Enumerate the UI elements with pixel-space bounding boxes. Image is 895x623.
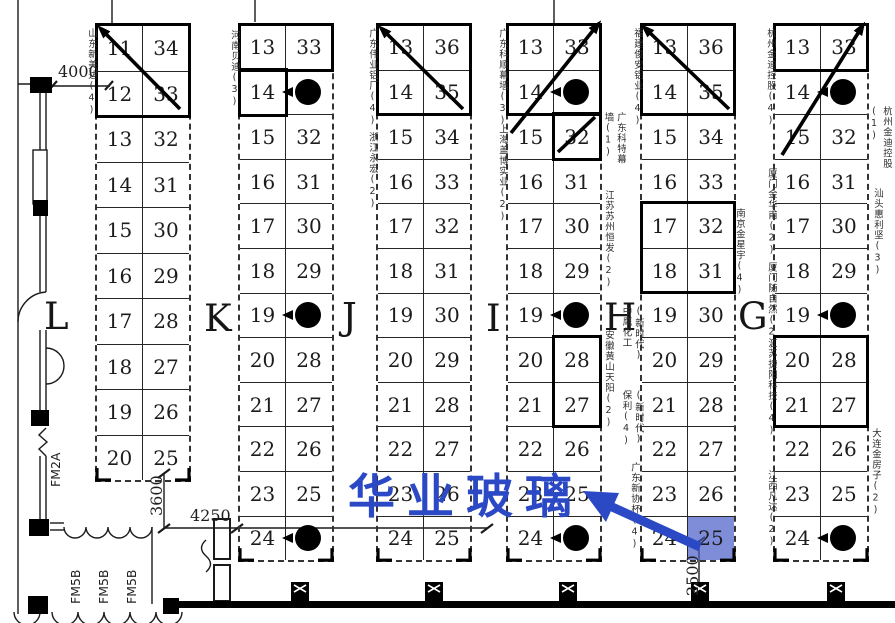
booth-cell: 18 [642, 249, 688, 293]
hall-letter-K: K [204, 297, 232, 340]
booth-cell: 13 [642, 25, 688, 70]
booth-row: 1435 [378, 70, 470, 115]
booth-cell: 33 [286, 25, 332, 70]
booth-row: 2326 [642, 471, 734, 516]
booth-cell: 21 [642, 383, 688, 427]
booth-cell: 26 [286, 427, 332, 471]
exhibitor-label: 广东科特幕墙(1) [600, 112, 626, 174]
booth-row: 1435 [642, 70, 734, 115]
booth-cell: 26 [143, 390, 189, 435]
booth-cell: 28 [424, 383, 470, 427]
booth-cell: 16 [378, 160, 424, 204]
booth-cell: 29 [688, 338, 734, 382]
booth-cell: 33 [821, 25, 867, 70]
booth-cell: 14 [508, 71, 554, 115]
booth-row: 1333 [508, 25, 600, 70]
exhibitor-label: 大连金房子(2) [867, 428, 881, 528]
booth-cell: 27 [821, 383, 867, 427]
exhibitor-label: 广东新协杯(4) [626, 462, 640, 554]
booth-cell: 27 [143, 345, 189, 390]
booth-cell: 28 [143, 299, 189, 344]
booth-row: 1827 [97, 344, 189, 390]
booth-row: 2128 [642, 382, 734, 427]
booth-row: 2325 [775, 471, 867, 516]
booth-cell: 13 [97, 117, 143, 162]
occupied-marker [830, 525, 856, 551]
booth-cell: 28 [286, 338, 332, 382]
booth-cell: 14 [642, 71, 688, 115]
booth-row: 1333 [240, 25, 332, 70]
booth-cell: 23 [642, 472, 688, 516]
booth-cell: 15 [508, 115, 554, 159]
booth-row: 2325 [240, 471, 332, 516]
booth-cell: 22 [240, 427, 286, 471]
booth-row: 1732 [642, 203, 734, 248]
booth-cell: 34 [143, 25, 189, 71]
booth-row: 1831 [642, 248, 734, 293]
exhibitor-label: 江苏捷阳科技(4) [763, 338, 777, 440]
booth-row: 1930 [378, 293, 470, 338]
booth-row: 24 [240, 516, 332, 561]
booth-cell: 36 [688, 25, 734, 70]
exhibitor-label: 江西凡达(2) [763, 470, 777, 555]
booth-cell: 19 [508, 294, 554, 338]
booth-row: 1631 [775, 159, 867, 204]
occupied-marker [830, 302, 856, 328]
booth-row: 14 [240, 70, 332, 115]
booth-cell: 15 [97, 208, 143, 253]
booth-row: 2028 [508, 337, 600, 382]
booth-cell: 32 [286, 115, 332, 159]
booth-cell: 19 [240, 294, 286, 338]
booth-row: 1633 [642, 159, 734, 204]
occupied-marker [563, 525, 589, 551]
booth-row: 1631 [508, 159, 600, 204]
booth-cell: 30 [821, 204, 867, 248]
door-label: FM5B [96, 569, 111, 604]
booth-row: 1332 [97, 116, 189, 162]
booth-cell: 32 [688, 204, 734, 248]
booth-cell: 30 [424, 294, 470, 338]
booth-cell: 16 [642, 160, 688, 204]
booth-cell: 32 [554, 115, 600, 159]
exhibitor-label: (新时代)中鹰化工(1) [618, 306, 644, 370]
dimension-text: 4250 [190, 506, 231, 525]
booth-row: 1930 [642, 293, 734, 338]
booth-row: 1333 [775, 25, 867, 70]
booth-cell: 25 [143, 436, 189, 481]
booth-cell: 17 [378, 204, 424, 248]
exhibitor-label: 南京金星宇(4) [731, 208, 745, 300]
booth-cell: 17 [508, 204, 554, 248]
booth-cell [286, 294, 332, 338]
booth-cell: 31 [143, 163, 189, 208]
booth-cell: 36 [424, 25, 470, 70]
occupied-marker [295, 79, 321, 105]
booth-cell [554, 71, 600, 115]
booth-cell: 18 [378, 249, 424, 293]
booth-row: 2127 [240, 382, 332, 427]
booth-cell: 30 [286, 204, 332, 248]
booth-cell [286, 517, 332, 561]
booth-cell [821, 294, 867, 338]
occupied-marker-tip [817, 310, 828, 320]
booth-cell: 13 [240, 25, 286, 70]
booth-cell: 33 [424, 160, 470, 204]
booth-cell: 18 [775, 249, 821, 293]
booth-cell: 16 [97, 254, 143, 299]
booth-row: 19 [775, 293, 867, 338]
booth-row: 2028 [775, 337, 867, 382]
booth-cell: 31 [424, 249, 470, 293]
booth-cell: 33 [554, 25, 600, 70]
booth-row: 2127 [508, 382, 600, 427]
booth-cell: 23 [240, 472, 286, 516]
booth-cell: 31 [554, 160, 600, 204]
occupied-marker [295, 525, 321, 551]
booth-cell: 14 [97, 163, 143, 208]
booth-cell: 17 [775, 204, 821, 248]
booth-row: 1730 [775, 203, 867, 248]
booth-cell: 26 [821, 427, 867, 471]
booth-row: 1134 [97, 25, 189, 71]
occupied-marker-tip [550, 533, 561, 543]
exhibitor-label: (新时代)保利(4) [618, 390, 644, 450]
booth-cell: 35 [424, 71, 470, 115]
occupied-marker [563, 302, 589, 328]
booth-cell: 16 [775, 160, 821, 204]
booth-row: 2127 [775, 382, 867, 427]
booth-row: 2227 [642, 426, 734, 471]
booth-cell: 20 [240, 338, 286, 382]
booth-cell: 22 [775, 427, 821, 471]
booth-cell: 18 [508, 249, 554, 293]
exhibitor-label: 江苏苏州恒发(2) [600, 190, 614, 292]
booth-cell: 11 [97, 25, 143, 71]
booth-cell: 31 [821, 160, 867, 204]
occupied-marker-tip [282, 87, 293, 97]
booth-cell: 20 [775, 338, 821, 382]
booth-cell: 20 [508, 338, 554, 382]
booth-cell: 21 [240, 383, 286, 427]
booth-cell: 33 [143, 72, 189, 117]
occupied-marker-tip [282, 310, 293, 320]
booth-cell: 20 [378, 338, 424, 382]
booth-cell: 34 [688, 115, 734, 159]
booth-row: 1532 [240, 114, 332, 159]
booth-cell: 32 [424, 204, 470, 248]
booth-row: 1829 [775, 248, 867, 293]
door-label: FM5B [68, 569, 83, 604]
occupied-marker [563, 79, 589, 105]
booth-cell: 21 [508, 383, 554, 427]
booth-cell: 24 [240, 517, 286, 561]
booth-cell: 29 [821, 249, 867, 293]
booth-cell: 13 [508, 25, 554, 70]
booth-cell: 27 [554, 383, 600, 427]
occupied-marker-tip [817, 533, 828, 543]
booth-cell: 14 [378, 71, 424, 115]
booth-cell: 19 [97, 390, 143, 435]
booth-cell [821, 71, 867, 115]
occupied-marker-tip [550, 310, 561, 320]
booth-row: 1730 [508, 203, 600, 248]
booth-row: 1534 [378, 114, 470, 159]
booth-cell: 30 [688, 294, 734, 338]
booth-cell [821, 517, 867, 561]
booth-row: 2029 [378, 337, 470, 382]
company-overlay-title: 华业玻璃 [348, 458, 584, 527]
booth-cell: 32 [143, 117, 189, 162]
booth-cell: 13 [378, 25, 424, 70]
booth-cell: 13 [775, 25, 821, 70]
booth-cell: 19 [378, 294, 424, 338]
booth-row: 1829 [240, 248, 332, 293]
booth-cell: 32 [821, 115, 867, 159]
booth-cell: 18 [97, 345, 143, 390]
booth-cell: 15 [378, 115, 424, 159]
booth-cell: 29 [424, 338, 470, 382]
booth-row: 1633 [378, 159, 470, 204]
booth-row: 1336 [642, 25, 734, 70]
booth-row: 1532 [775, 114, 867, 159]
exhibitor-label: 杭州金迪控股(1) [866, 106, 892, 170]
booth-row: 14 [508, 70, 600, 115]
booth-row: 2029 [642, 337, 734, 382]
booth-cell: 18 [240, 249, 286, 293]
booth-row: 14 [775, 70, 867, 115]
booth-row: 1926 [97, 389, 189, 435]
booth-cell: 34 [424, 115, 470, 159]
booth-cell: 31 [286, 160, 332, 204]
hall-letter-L: L [44, 295, 69, 338]
booth-cell: 20 [642, 338, 688, 382]
occupied-marker-tip [817, 87, 828, 97]
hall-letter-I: I [486, 297, 501, 340]
booth-cell: 25 [821, 472, 867, 516]
exhibitor-label: 安徽黄山天阳(2) [600, 330, 614, 432]
exhibitor-label: 广东伟业铝厂(4) [364, 28, 378, 148]
exhibitor-label: 汕头惠利坚(3) [869, 188, 883, 288]
booth-cell: 16 [508, 160, 554, 204]
booth-row: 1336 [378, 25, 470, 70]
booth-column-6: 1333141532163117301829192028212722262325… [773, 23, 869, 562]
booth-cell: 25 [286, 472, 332, 516]
booth-cell: 28 [688, 383, 734, 427]
booth-cell: 31 [688, 249, 734, 293]
booth-column-5: 1336143515341633173218311930202921282227… [640, 23, 736, 562]
hall-letter-J: J [342, 295, 357, 338]
dimension-text: 2500 [683, 555, 702, 596]
highlighted-booth: 25 [688, 517, 734, 561]
occupied-marker-tip [550, 87, 561, 97]
booth-cell: 17 [240, 204, 286, 248]
booth-cell: 22 [642, 427, 688, 471]
booth-cell: 17 [97, 299, 143, 344]
booth-column-1: 1134123313321431153016291728182719262025 [95, 23, 191, 482]
booth-cell: 15 [775, 115, 821, 159]
occupied-marker [830, 79, 856, 105]
booth-row: 1629 [97, 253, 189, 299]
booth-cell: 12 [97, 72, 143, 117]
booth-row: 1732 [378, 203, 470, 248]
booth-cell: 29 [286, 249, 332, 293]
booth-cell: 14 [240, 71, 286, 115]
booth-row: 1631 [240, 159, 332, 204]
booth-cell: 26 [688, 472, 734, 516]
booth-cell: 28 [821, 338, 867, 382]
occupied-marker [295, 302, 321, 328]
booth-cell: 27 [688, 427, 734, 471]
booth-row: 1831 [378, 248, 470, 293]
door-label: FM5B [124, 569, 139, 604]
dimension-text: 3600 [147, 475, 166, 516]
booth-cell: 15 [642, 115, 688, 159]
booth-cell: 19 [775, 294, 821, 338]
booth-row: 2025 [97, 435, 189, 481]
booth-cell: 19 [642, 294, 688, 338]
booth-cell: 33 [688, 160, 734, 204]
booth-row: 2425 [642, 516, 734, 561]
booth-row: 2028 [240, 337, 332, 382]
booth-cell: 28 [554, 338, 600, 382]
booth-cell: 21 [775, 383, 821, 427]
booth-row: 1534 [642, 114, 734, 159]
booth-cell [554, 294, 600, 338]
occupied-marker-tip [282, 533, 293, 543]
booth-cell: 24 [775, 517, 821, 561]
booth-cell: 29 [143, 254, 189, 299]
booth-cell: 30 [143, 208, 189, 253]
booth-row: 1829 [508, 248, 600, 293]
exhibitor-label: 杭州金迪控股(4) [762, 28, 776, 140]
exhibitor-label: 上海盖博实业(2) [494, 124, 508, 224]
booth-cell: 14 [775, 71, 821, 115]
booth-row: 1728 [97, 298, 189, 344]
booth-row: 2226 [240, 426, 332, 471]
exhibitor-label: 山东新美达(4) [83, 28, 97, 140]
booth-row: 1532 [508, 114, 600, 159]
booth-cell: 16 [240, 160, 286, 204]
booth-cell [286, 71, 332, 115]
booth-row: 2128 [378, 382, 470, 427]
exhibitor-label: 厦门金华甫(2) [763, 168, 777, 260]
booth-row: 1233 [97, 71, 189, 117]
booth-cell: 24 [642, 517, 688, 561]
booth-cell: 35 [688, 71, 734, 115]
booth-row: 1530 [97, 207, 189, 253]
booth-row: 19 [508, 293, 600, 338]
booth-cell: 27 [286, 383, 332, 427]
booth-cell: 30 [554, 204, 600, 248]
booth-row: 19 [240, 293, 332, 338]
booth-cell: 17 [642, 204, 688, 248]
dimension-text: 4000 [58, 62, 99, 81]
booth-row: 2226 [775, 426, 867, 471]
booth-row: 1431 [97, 162, 189, 208]
booth-cell: 21 [378, 383, 424, 427]
booth-row: 24 [775, 516, 867, 561]
door-label: FM2A [48, 453, 63, 487]
booth-row: 1730 [240, 203, 332, 248]
exhibition-floor-plan: 1134123313321431153016291728182719262025… [0, 0, 895, 623]
booth-cell: 15 [240, 115, 286, 159]
booth-cell: 29 [554, 249, 600, 293]
booth-column-2: 1333141532163117301829192028212722262325… [238, 23, 334, 562]
exhibitor-label: 河南贝迪(3) [226, 30, 240, 125]
exhibitor-label: 福建俊安铝业(4) [629, 28, 643, 140]
booth-grid: 1134123313321431153016291728182719262025… [0, 0, 895, 623]
exhibitor-label: 浙江永宏(2) [364, 132, 378, 220]
booth-cell: 20 [97, 436, 143, 481]
booth-cell: 23 [775, 472, 821, 516]
